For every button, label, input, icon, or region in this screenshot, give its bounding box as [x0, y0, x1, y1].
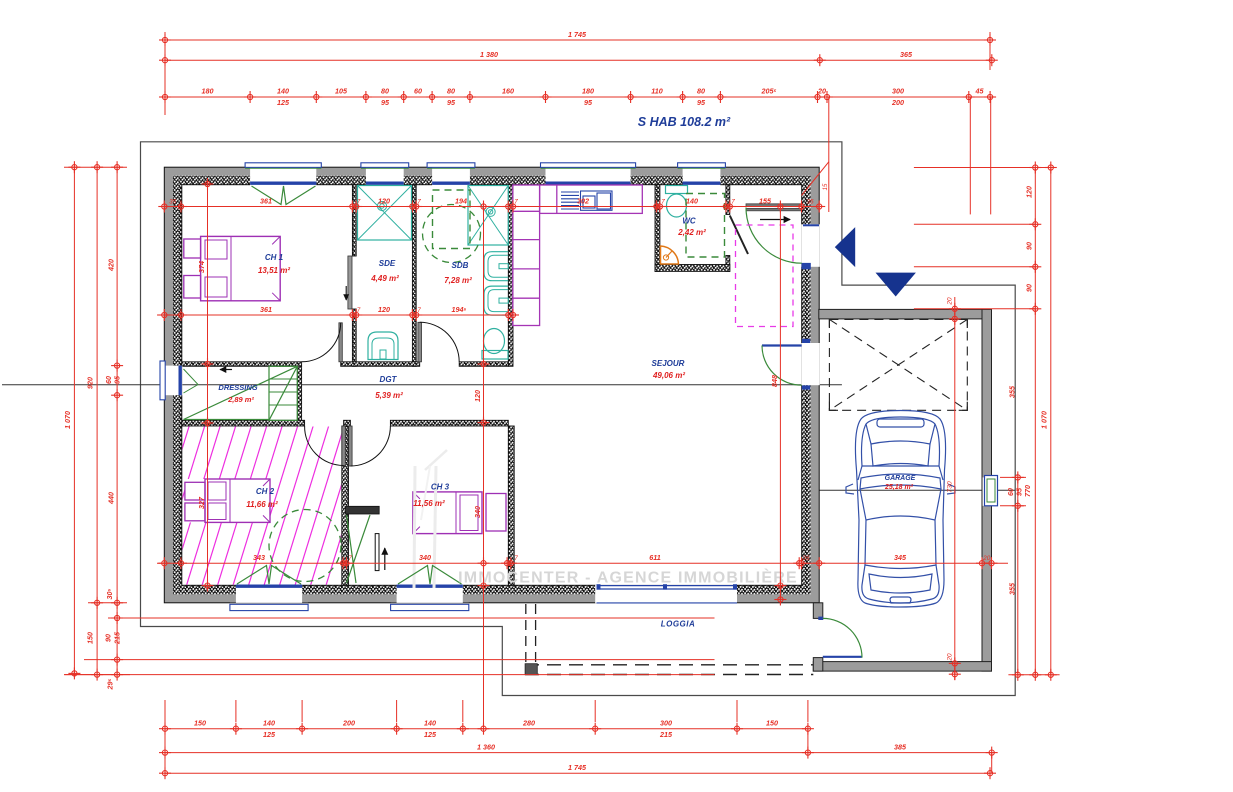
svg-text:200: 200: [891, 98, 904, 107]
svg-text:150: 150: [194, 719, 206, 728]
svg-text:7: 7: [348, 555, 352, 562]
svg-text:S HAB 108.2 m²: S HAB 108.2 m²: [638, 115, 731, 129]
svg-text:300: 300: [892, 87, 904, 96]
svg-text:120: 120: [473, 390, 482, 402]
svg-text:770: 770: [1023, 485, 1032, 497]
svg-text:1 070: 1 070: [63, 411, 72, 429]
svg-text:420: 420: [107, 259, 116, 272]
svg-text:25,18 m²: 25,18 m²: [884, 484, 914, 491]
svg-text:20: 20: [982, 555, 991, 562]
svg-text:20: 20: [817, 87, 826, 96]
svg-text:1 070: 1 070: [1040, 411, 1049, 429]
svg-text:95: 95: [697, 98, 706, 107]
svg-text:327: 327: [197, 496, 206, 509]
svg-text:1 745: 1 745: [568, 30, 587, 39]
svg-text:7,28 m²: 7,28 m²: [444, 276, 472, 285]
svg-text:45: 45: [975, 87, 985, 96]
svg-text:194⁶: 194⁶: [452, 305, 467, 314]
svg-text:140: 140: [424, 719, 436, 728]
svg-text:DGT: DGT: [380, 375, 398, 384]
svg-text:95: 95: [113, 375, 122, 384]
svg-text:20: 20: [946, 297, 953, 306]
svg-text:49,06 m²: 49,06 m²: [652, 371, 685, 380]
svg-text:26: 26: [801, 555, 810, 562]
svg-text:95: 95: [381, 98, 390, 107]
svg-text:140: 140: [277, 87, 289, 96]
svg-text:5,39 m²: 5,39 m²: [375, 391, 403, 400]
svg-text:215: 215: [113, 631, 122, 645]
svg-text:7: 7: [417, 307, 421, 314]
svg-text:385: 385: [894, 742, 907, 751]
svg-text:7: 7: [731, 198, 735, 205]
svg-text:90: 90: [104, 634, 113, 642]
svg-text:611: 611: [649, 553, 660, 562]
svg-text:1 745: 1 745: [568, 763, 587, 772]
svg-text:120: 120: [1025, 186, 1034, 198]
svg-text:215: 215: [659, 730, 673, 739]
svg-text:4,49 m²: 4,49 m²: [370, 274, 399, 283]
svg-text:SEJOUR: SEJOUR: [652, 359, 685, 368]
svg-text:CH 3: CH 3: [431, 483, 450, 492]
svg-text:90: 90: [1025, 284, 1034, 292]
svg-text:7: 7: [514, 555, 518, 562]
svg-text:DRESSING: DRESSING: [218, 383, 257, 392]
svg-text:WC: WC: [682, 217, 696, 226]
svg-text:1 360: 1 360: [477, 742, 495, 751]
svg-text:920: 920: [86, 377, 95, 389]
svg-text:SDE: SDE: [379, 259, 396, 268]
svg-text:95: 95: [447, 98, 456, 107]
svg-text:11,66 m²: 11,66 m²: [246, 500, 278, 509]
svg-text:GARAGE: GARAGE: [885, 475, 916, 482]
svg-text:35: 35: [169, 198, 177, 205]
svg-text:340: 340: [419, 553, 431, 562]
svg-text:95: 95: [584, 98, 593, 107]
svg-text:355: 355: [1007, 385, 1016, 398]
svg-text:125: 125: [277, 98, 290, 107]
svg-text:180: 180: [202, 87, 214, 96]
svg-text:180: 180: [582, 87, 594, 96]
svg-text:194: 194: [455, 196, 467, 205]
svg-text:125: 125: [263, 730, 276, 739]
svg-text:11,56 m²: 11,56 m²: [413, 499, 445, 508]
svg-text:440: 440: [107, 492, 116, 505]
svg-text:105: 105: [335, 87, 348, 96]
svg-text:280: 280: [522, 719, 535, 728]
svg-text:80: 80: [697, 87, 705, 96]
svg-text:150: 150: [766, 719, 778, 728]
svg-text:7: 7: [357, 198, 361, 205]
svg-text:IMMOCENTER - AGENCE IMMOBILIÈR: IMMOCENTER - AGENCE IMMOBILIÈRE: [458, 568, 798, 587]
svg-text:2,89 m²: 2,89 m²: [227, 395, 254, 404]
svg-text:155: 155: [759, 196, 772, 205]
svg-text:205⁵: 205⁵: [761, 87, 777, 96]
svg-text:7: 7: [357, 307, 361, 314]
svg-text:140: 140: [686, 196, 698, 205]
svg-text:120: 120: [378, 305, 390, 314]
svg-text:730: 730: [946, 481, 953, 493]
svg-text:343: 343: [253, 553, 265, 562]
svg-text:7: 7: [417, 198, 421, 205]
svg-text:848: 848: [770, 375, 779, 387]
svg-text:80: 80: [447, 87, 455, 96]
svg-text:90: 90: [1025, 242, 1034, 250]
svg-text:7: 7: [514, 198, 518, 205]
svg-text:361: 361: [260, 196, 272, 205]
svg-text:365: 365: [900, 50, 913, 59]
svg-text:29⁵: 29⁵: [106, 678, 115, 690]
svg-text:7: 7: [661, 198, 665, 205]
svg-text:13,51 m²: 13,51 m²: [258, 266, 290, 275]
svg-text:30⁵: 30⁵: [105, 588, 114, 599]
svg-text:15: 15: [823, 183, 829, 190]
svg-text:120: 120: [378, 196, 390, 205]
svg-text:374: 374: [197, 261, 206, 273]
svg-text:302: 302: [577, 196, 589, 205]
svg-text:60: 60: [414, 87, 422, 96]
svg-text:125: 125: [424, 730, 437, 739]
svg-text:150: 150: [86, 632, 95, 644]
svg-text:345: 345: [894, 553, 907, 562]
svg-text:2,42 m²: 2,42 m²: [677, 228, 706, 237]
svg-text:200: 200: [342, 719, 355, 728]
svg-text:80: 80: [381, 87, 389, 96]
svg-text:355: 355: [1007, 582, 1016, 595]
svg-text:1 380: 1 380: [480, 50, 498, 59]
svg-text:20: 20: [946, 653, 953, 662]
svg-text:LOGGIA: LOGGIA: [661, 620, 696, 629]
svg-text:300: 300: [660, 719, 672, 728]
svg-text:CH 1: CH 1: [265, 253, 284, 262]
svg-text:340: 340: [473, 506, 482, 518]
svg-text:361: 361: [260, 305, 272, 314]
svg-text:110: 110: [651, 87, 662, 96]
svg-text:CH 2: CH 2: [256, 487, 275, 496]
svg-text:35: 35: [806, 198, 814, 205]
svg-text:SDB: SDB: [452, 261, 469, 270]
svg-text:140: 140: [263, 719, 275, 728]
svg-text:160: 160: [502, 87, 514, 96]
